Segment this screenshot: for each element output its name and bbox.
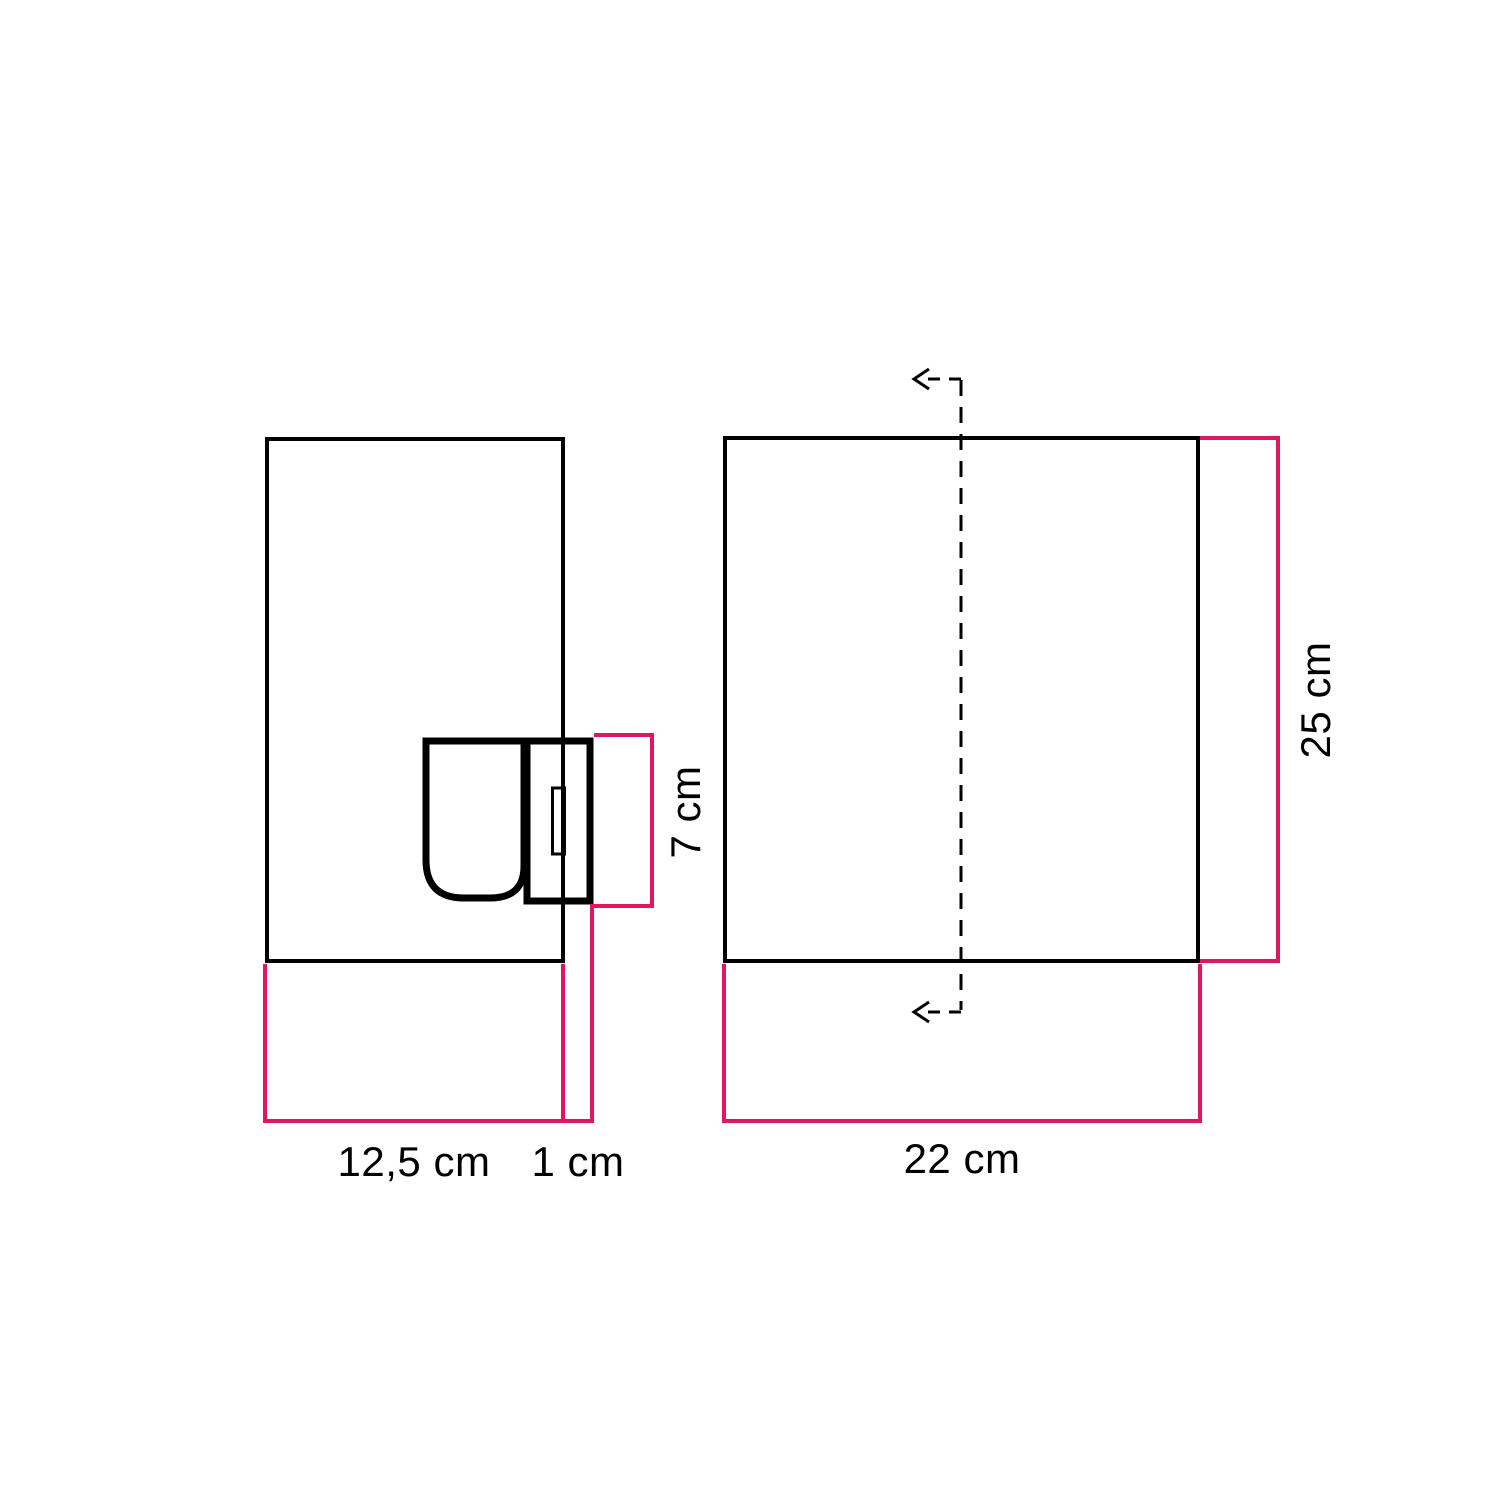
- lamp-holder-cup: [426, 741, 524, 898]
- left-arrow-icon-bottom: [914, 1002, 929, 1022]
- side-width-dimension-bracket: [263, 964, 594, 1121]
- front-view: 22 cm 25 cm: [722, 369, 1339, 1182]
- left-arrow-icon-top: [914, 369, 929, 389]
- front-height-dimension-bracket: [1200, 438, 1278, 961]
- holder-height-label: 7 cm: [662, 765, 709, 858]
- front-height-label: 25 cm: [1292, 642, 1339, 759]
- dimension-diagram: 12,5 cm 1 cm 7 cm 22 cm 25 cm: [0, 0, 1500, 1500]
- dimension-diagram-page: 12,5 cm 1 cm 7 cm 22 cm 25 cm: [0, 0, 1500, 1500]
- holder-height-dimension-bracket: [592, 735, 652, 1121]
- side-view: 12,5 cm 1 cm 7 cm: [263, 439, 709, 1185]
- plate-offset-label: 1 cm: [531, 1138, 624, 1185]
- side-width-label: 12,5 cm: [338, 1138, 491, 1185]
- front-width-label: 22 cm: [904, 1135, 1021, 1182]
